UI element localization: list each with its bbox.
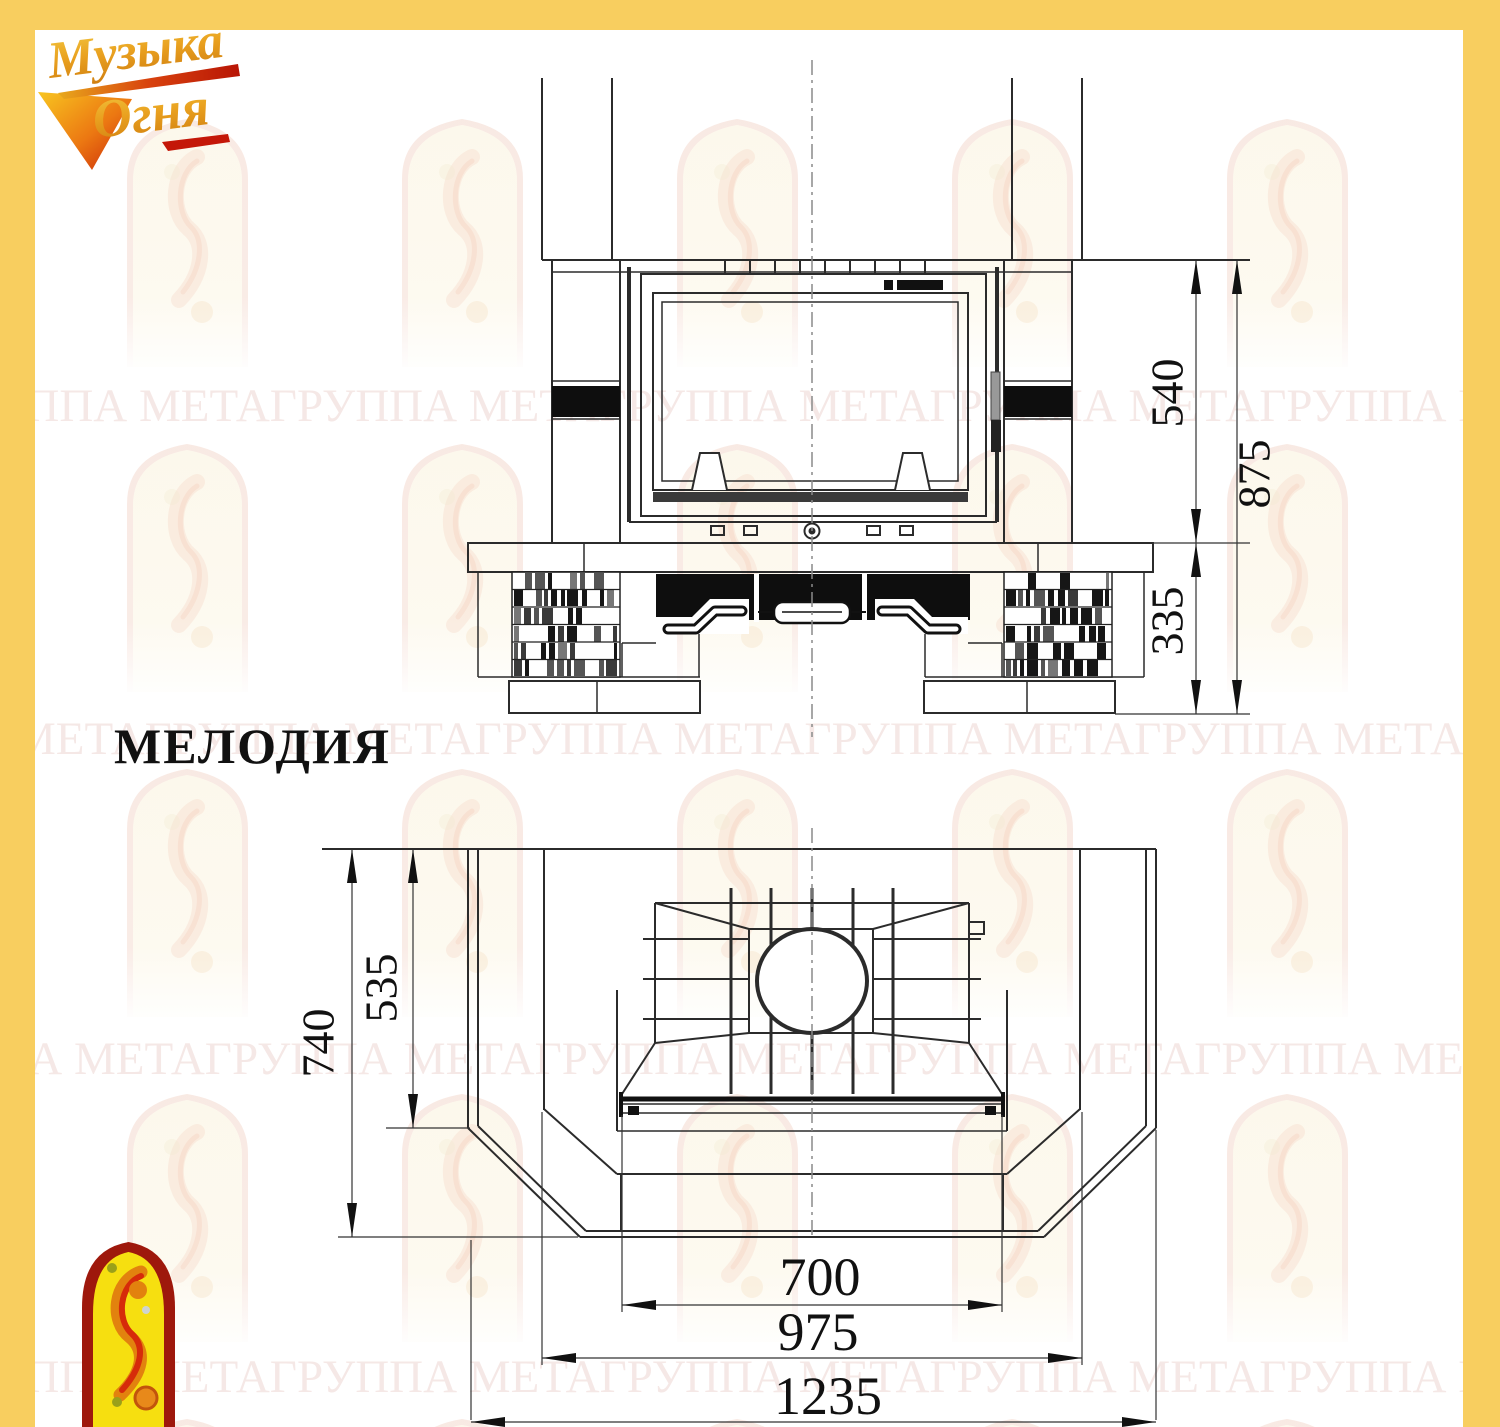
svg-text:540: 540 (1142, 359, 1193, 428)
svg-text:700: 700 (780, 1247, 861, 1307)
svg-text:875: 875 (1229, 440, 1280, 509)
svg-text:740: 740 (293, 1009, 344, 1078)
svg-text:1235: 1235 (774, 1366, 882, 1426)
svg-text:335: 335 (1142, 587, 1193, 656)
svg-text:975: 975 (778, 1302, 859, 1362)
svg-text:ГРУППА МЕТАГРУППА МЕТАГРУППА М: ГРУППА МЕТАГРУППА МЕТАГРУППА МЕТАГРУППА … (0, 1351, 1500, 1403)
svg-text:ГРУППА МЕТАГРУППА МЕТАГРУППА М: ГРУППА МЕТАГРУППА МЕТАГРУППА МЕТАГРУППА … (0, 1033, 1500, 1085)
svg-text:ГРУППА МЕТАГРУППА МЕТАГРУППА М: ГРУППА МЕТАГРУППА МЕТАГРУППА МЕТАГРУППА … (0, 380, 1500, 432)
svg-text:535: 535 (356, 954, 407, 1023)
svg-text:МЕЛОДИЯ: МЕЛОДИЯ (114, 718, 391, 774)
